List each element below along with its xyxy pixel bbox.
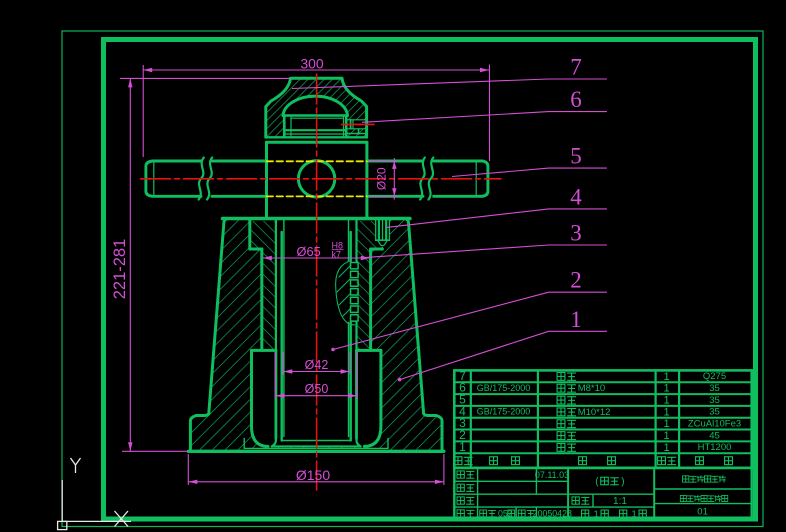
svg-text:1: 1 [663,418,669,430]
svg-text:Q275: Q275 [703,371,726,382]
svg-text:HT1200: HT1200 [698,442,732,453]
svg-text:ZCuAl10Fe3: ZCuAl10Fe3 [688,418,741,429]
svg-text:1: 1 [594,509,599,520]
svg-text:Ø150: Ø150 [296,467,330,483]
svg-text:): ) [621,477,624,488]
svg-text:2: 2 [570,268,582,293]
svg-text:1: 1 [663,383,669,395]
svg-text:Ø20: Ø20 [375,167,389,190]
svg-text:1: 1 [663,406,669,418]
svg-text:k7: k7 [332,250,342,260]
svg-text:1: 1 [632,509,637,520]
svg-text:7: 7 [570,55,582,80]
svg-text:Ø42: Ø42 [305,358,329,372]
svg-text:6: 6 [570,87,582,112]
svg-text:GB/175-2000: GB/175-2000 [477,407,531,417]
svg-text:45: 45 [709,430,720,441]
svg-text:GB/175-2000: GB/175-2000 [477,383,531,393]
svg-text:1:1: 1:1 [613,496,627,507]
svg-text:221-281: 221-281 [111,239,129,300]
svg-text:1: 1 [663,371,669,383]
svg-text:01: 01 [697,507,708,518]
svg-text:300: 300 [300,56,324,72]
svg-text:1: 1 [570,307,582,332]
svg-text:35: 35 [709,395,720,406]
svg-text:1: 1 [663,430,669,442]
svg-text:5: 5 [570,144,582,169]
svg-text:Ø50: Ø50 [305,382,329,396]
svg-text:1: 1 [663,395,669,407]
svg-text:Ø65: Ø65 [297,244,321,259]
svg-text:07.11.03: 07.11.03 [535,470,569,480]
svg-text:M8*10: M8*10 [578,383,605,394]
svg-text:3: 3 [570,221,582,246]
svg-text:M10*12: M10*12 [578,407,611,418]
svg-text:35: 35 [709,383,720,394]
svg-text:20050428: 20050428 [533,509,572,519]
svg-text:35: 35 [709,407,720,418]
svg-text:1: 1 [459,440,466,454]
svg-text:(: ( [595,477,599,488]
svg-text:4: 4 [570,185,582,210]
svg-text:1: 1 [663,442,669,454]
